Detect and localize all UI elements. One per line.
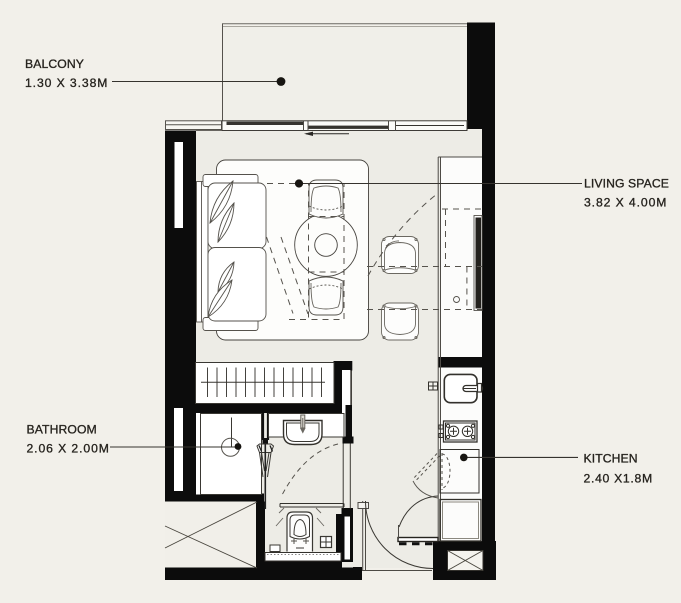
svg-text:1.30 X 3.38M: 1.30 X 3.38M bbox=[25, 76, 108, 90]
svg-text:2.40 X1.8M: 2.40 X1.8M bbox=[584, 472, 653, 486]
svg-text:KITCHEN: KITCHEN bbox=[584, 452, 638, 466]
svg-text:BATHROOM: BATHROOM bbox=[27, 423, 97, 437]
svg-text:3.82 X 4.00M: 3.82 X 4.00M bbox=[584, 196, 667, 210]
svg-text:LIVING SPACE: LIVING SPACE bbox=[584, 177, 669, 191]
svg-text:2.06 X 2.00M: 2.06 X 2.00M bbox=[27, 442, 110, 456]
svg-text:BALCONY: BALCONY bbox=[25, 57, 84, 71]
